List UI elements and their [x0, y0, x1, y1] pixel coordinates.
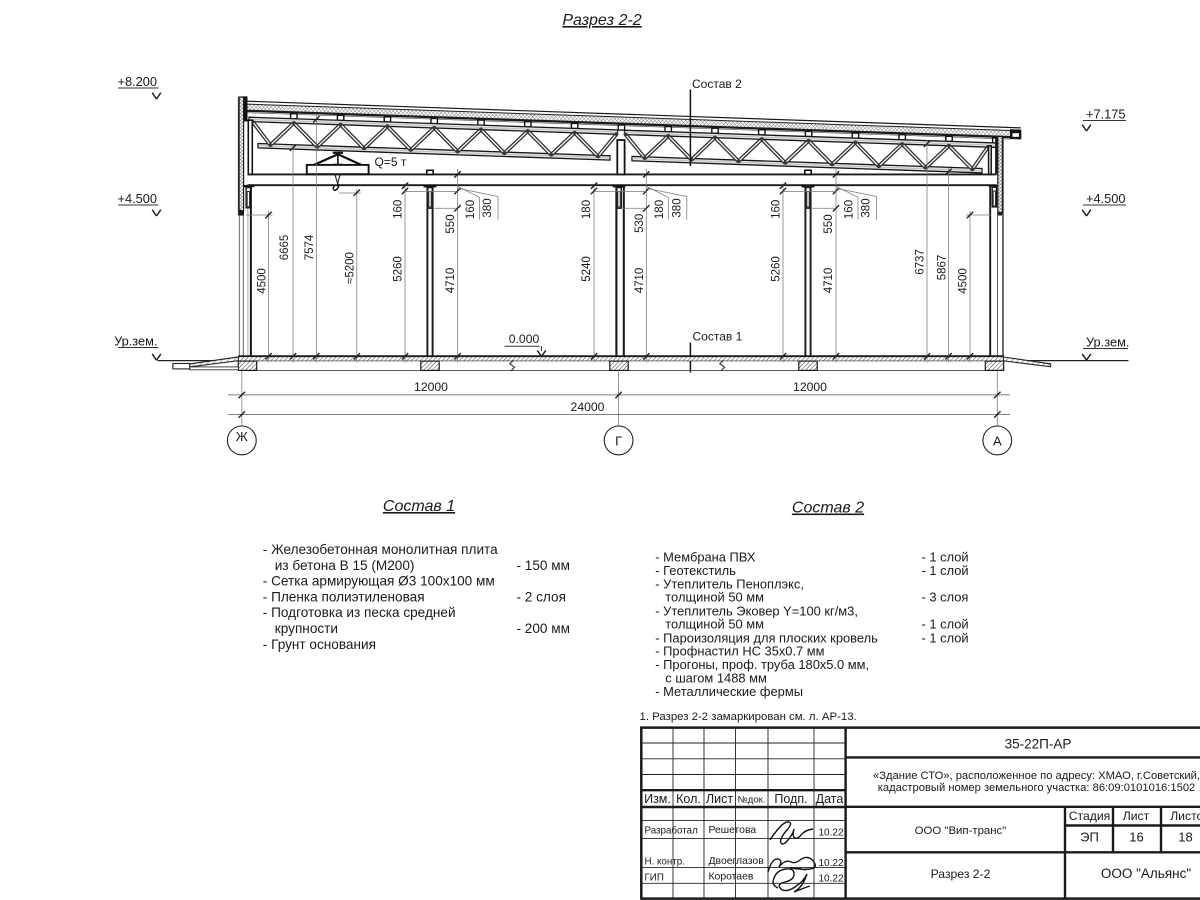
- svg-text:5867: 5867: [937, 255, 949, 281]
- svg-text:35-22П-АР: 35-22П-АР: [1005, 737, 1072, 752]
- svg-text:Q=5 т: Q=5 т: [375, 155, 407, 169]
- svg-text:550: 550: [823, 214, 835, 233]
- svg-text:4710: 4710: [823, 268, 835, 294]
- svg-text:6665: 6665: [279, 235, 291, 261]
- svg-text:ЭП: ЭП: [1080, 829, 1099, 844]
- svg-text:Г: Г: [615, 434, 622, 449]
- svg-text:6737: 6737: [915, 249, 927, 275]
- svg-text:380: 380: [672, 198, 684, 217]
- svg-text:- 1 слой: - 1 слой: [922, 631, 969, 646]
- svg-text:из бетона В 15 (М200): из бетона В 15 (М200): [275, 558, 415, 573]
- svg-text:Н. контр.: Н. контр.: [645, 857, 685, 868]
- svg-text:- 1 слой: - 1 слой: [922, 617, 969, 632]
- svg-text:Разрез 2-2: Разрез 2-2: [562, 12, 641, 29]
- svg-text:+8.200: +8.200: [118, 74, 158, 89]
- svg-text:Состав 1: Состав 1: [693, 330, 743, 344]
- svg-text:Двоеглазов: Двоеглазов: [709, 856, 765, 867]
- svg-text:крупности: крупности: [275, 621, 338, 636]
- svg-text:+4.500: +4.500: [1086, 191, 1126, 206]
- svg-text:- Грунт основания: - Грунт основания: [263, 637, 376, 652]
- svg-text:4710: 4710: [634, 268, 646, 294]
- svg-text:- Железобетонная монолитная п: - Железобетонная монолитная плита: [263, 542, 498, 557]
- svg-text:- Металлические фермы: - Металлические фермы: [655, 684, 803, 699]
- svg-text:Листов: Листов: [1170, 809, 1200, 823]
- svg-text:16: 16: [1129, 829, 1143, 844]
- svg-text:Разработал: Разработал: [645, 826, 699, 837]
- svg-text:толщиной 50 мм: толщиной 50 мм: [665, 590, 764, 605]
- svg-text:Разрез 2-2: Разрез 2-2: [931, 867, 991, 881]
- svg-text:4500: 4500: [958, 268, 970, 294]
- svg-text:Состав 2: Состав 2: [792, 500, 864, 517]
- svg-text:380: 380: [482, 198, 494, 217]
- svg-text:ООО "Альянс": ООО "Альянс": [1101, 866, 1191, 881]
- svg-text:- 3 слоя: - 3 слоя: [922, 590, 969, 605]
- svg-text:7574: 7574: [304, 234, 316, 260]
- svg-text:12000: 12000: [793, 380, 827, 394]
- svg-text:Ур.зем.: Ур.зем.: [1086, 335, 1129, 350]
- svg-text:0.000: 0.000: [509, 332, 540, 346]
- svg-text:Лист: Лист: [706, 792, 733, 806]
- svg-text:Ж: Ж: [236, 429, 248, 444]
- svg-text:- Пленка полиэтиленовая: - Пленка полиэтиленовая: [263, 589, 425, 604]
- svg-text:- 2 слоя: - 2 слоя: [517, 589, 566, 604]
- svg-text:5240: 5240: [581, 256, 593, 282]
- svg-text:- 1 слой: - 1 слой: [922, 563, 969, 578]
- svg-text:Решетова: Решетова: [709, 825, 757, 836]
- svg-text:5260: 5260: [393, 256, 405, 282]
- svg-text:кадастровый номер земельного у: кадастровый номер земельного участка: 86…: [878, 782, 1196, 794]
- svg-text:ООО "Вип-транс": ООО "Вип-транс": [915, 825, 1007, 837]
- svg-text:160: 160: [393, 200, 405, 219]
- svg-text:180: 180: [581, 200, 593, 219]
- svg-text:10.22: 10.22: [818, 828, 843, 839]
- svg-text:Коротаев: Коротаев: [709, 872, 754, 883]
- svg-text:160: 160: [465, 200, 477, 219]
- svg-text:+7.175: +7.175: [1086, 107, 1126, 122]
- svg-text:4710: 4710: [445, 268, 457, 294]
- svg-text:- Сетка армирующая Ø3 100х100: - Сетка армирующая Ø3 100х100 мм: [263, 574, 495, 589]
- svg-text:- 200 мм: - 200 мм: [517, 621, 570, 636]
- svg-text:Ур.зем.: Ур.зем.: [114, 334, 157, 349]
- svg-text:Стадия: Стадия: [1069, 809, 1111, 823]
- svg-text:+4.500: +4.500: [118, 191, 158, 206]
- svg-text:«Здание СТО», расположенное по: «Здание СТО», расположенное по адресу: Х…: [873, 770, 1200, 782]
- svg-text:1. Разрез 2-2 замаркирован см.: 1. Разрез 2-2 замаркирован см. л. АР-13.: [640, 711, 857, 723]
- svg-text:Изм.: Изм.: [644, 792, 671, 806]
- svg-text:Дата: Дата: [816, 792, 844, 806]
- svg-text:Состав 1: Состав 1: [383, 498, 455, 515]
- svg-text:толщиной 50 мм: толщиной 50 мм: [665, 617, 764, 632]
- svg-text:160: 160: [844, 200, 856, 219]
- svg-text:ГИП: ГИП: [645, 873, 664, 884]
- svg-text:18: 18: [1178, 829, 1192, 844]
- svg-text:160: 160: [771, 200, 783, 219]
- svg-text:5260: 5260: [771, 256, 783, 282]
- svg-text:А: А: [993, 434, 1002, 449]
- svg-text:380: 380: [861, 198, 873, 217]
- svg-text:24000: 24000: [571, 400, 605, 414]
- svg-text:- 150 мм: - 150 мм: [517, 558, 570, 573]
- svg-text:180: 180: [654, 200, 666, 219]
- svg-text:530: 530: [634, 214, 646, 233]
- svg-text:12000: 12000: [414, 380, 448, 394]
- svg-text:Состав 2: Состав 2: [692, 77, 742, 91]
- svg-text:10.22: 10.22: [818, 874, 843, 885]
- svg-text:≈5200: ≈5200: [345, 252, 357, 284]
- svg-text:- Подготовка из песка средней: - Подготовка из песка средней: [263, 605, 456, 620]
- svg-text:Кол.: Кол.: [676, 792, 701, 806]
- svg-text:№док.: №док.: [738, 794, 766, 805]
- svg-text:4500: 4500: [257, 268, 269, 294]
- svg-text:10.22: 10.22: [818, 858, 843, 869]
- svg-text:550: 550: [445, 214, 457, 233]
- svg-text:Подп.: Подп.: [774, 792, 807, 806]
- svg-text:Лист: Лист: [1123, 809, 1150, 823]
